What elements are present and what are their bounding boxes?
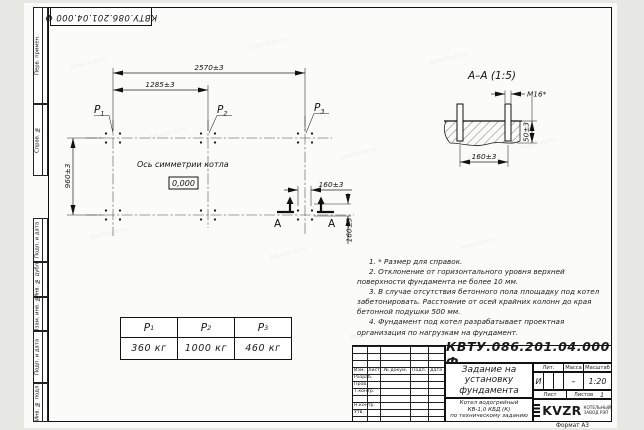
scale-label: Масштаб (584, 364, 611, 371)
lit-cell-2 (544, 373, 554, 389)
title-block-product: Котел водогрейный КВ-1,0 КБД (К) по техн… (445, 398, 533, 422)
row-razrab: Разраб. (354, 375, 372, 380)
title-block-lit-values: И – 1:20 (533, 372, 612, 390)
company-logo-cell: KVZR КОТЕЛЬНЫЙ ЗАВОД РЭП (533, 399, 612, 422)
kvzr-logo-icon (534, 404, 540, 417)
plan-view: 2570±3 1285±3 960±3 P1 P2 P3 Ось симметр… (63, 63, 354, 244)
kvzr-logo-text: KVZR (542, 403, 581, 418)
sheets-label: Листов (574, 392, 593, 398)
mass-label: Масса (564, 364, 584, 371)
grid-line (410, 346, 411, 421)
company-line-2: ЗАВОД РЭП (584, 410, 609, 415)
title-block-sheet-row: Лист Листов 1 (533, 390, 612, 399)
load-table-value-row: 360 кг 1000 кг 460 кг (121, 338, 291, 359)
section-view-a-a: А–А (1:5) М16* 50±3 160±3 (444, 70, 547, 167)
mass-value: – (564, 373, 584, 389)
sheets-value: 1 (600, 391, 604, 399)
grid-line (380, 346, 381, 421)
level-mark: 0,000 (172, 179, 195, 188)
lit-cell-3 (554, 373, 564, 389)
load-table-header-p1: P1 (121, 318, 178, 338)
col-date: Дата (430, 368, 442, 373)
sheet-label: Лист (534, 391, 567, 398)
load-table-header-row: P1 P2 P3 (121, 318, 291, 338)
anchor-bolt-left (457, 104, 463, 141)
col-doc: № докум. (384, 368, 407, 373)
col-izm: Изм. (354, 368, 365, 373)
col-list: Лист (368, 368, 380, 373)
col-sign: Подп. (412, 368, 426, 373)
anchor-bolt-right (505, 104, 511, 141)
drawing-sheet: { "sheet": { "stamp_top": "КВТУ.086.201.… (0, 0, 644, 430)
axis-symmetry-label: Ось симметрии котла (137, 160, 229, 169)
dim-overall: 2570±3 (194, 63, 224, 72)
load-table: P1 P2 P3 360 кг 1000 кг 460 кг (120, 317, 292, 360)
dim-spacing: 160±3 (472, 152, 497, 161)
dim-height: 50±3 (522, 122, 531, 142)
lit-label: Лит. (534, 364, 564, 371)
notes-block: 1. * Размер для справок. 2. Отклонение о… (357, 257, 611, 338)
anchor-bolt-dots (105, 132, 313, 220)
section-letter-left: А (274, 218, 282, 230)
lit-value: И (534, 373, 544, 389)
product-line-1: Котел водогрейный (460, 400, 519, 407)
note-1: 1. * Размер для справок. (357, 257, 611, 267)
note-3: 3. В случае отсутствия бетонного пола пл… (357, 287, 611, 317)
format-label: Формат А3 (533, 422, 612, 430)
company-name: КОТЕЛЬНЫЙ ЗАВОД РЭП (584, 406, 611, 416)
dim-half: 1285±3 (145, 80, 175, 89)
load-table-header-p3: P3 (235, 318, 291, 338)
grid-line (428, 346, 429, 421)
row-utv: Утв. (354, 410, 364, 415)
dim-bolt-y: 160±3 (345, 217, 354, 242)
dim-depth: 960±3 (63, 163, 72, 188)
row-nkontr: Н.контр. (354, 403, 375, 408)
scale-value: 1:20 (584, 373, 611, 389)
product-line-3: по техническому заданию (450, 413, 528, 420)
title-block-signature-grid: Изм. Лист № докум. Подп. Дата Разраб. Пр… (352, 345, 445, 422)
dim-thread: М16* (527, 90, 547, 99)
note-4: 4. Фундамент под котел разрабатывает про… (357, 317, 611, 337)
title-block-designation: КВТУ.086.201.04.000 Ф (445, 345, 612, 363)
dim-bolt-x: 160±3 (319, 180, 344, 189)
product-line-2: КВ-1,0 КБД (К) (468, 407, 511, 414)
row-tkontr: Т.контр. (354, 389, 374, 394)
load-table-header-p2: P2 (178, 318, 235, 338)
row-prov: Пров. (354, 382, 368, 387)
load-value-p3: 460 кг (235, 338, 291, 359)
title-block-doc-title: Задание на установку фундамента (445, 363, 533, 398)
load-value-p2: 1000 кг (178, 338, 235, 359)
note-2: 2. Отклонение от горизонтального уровня … (357, 267, 611, 287)
section-title: А–А (1:5) (467, 70, 516, 82)
title-block-lit-header: Лит. Масса Масштаб (533, 363, 612, 372)
load-value-p1: 360 кг (121, 338, 178, 359)
section-letter-right: А (328, 218, 336, 230)
